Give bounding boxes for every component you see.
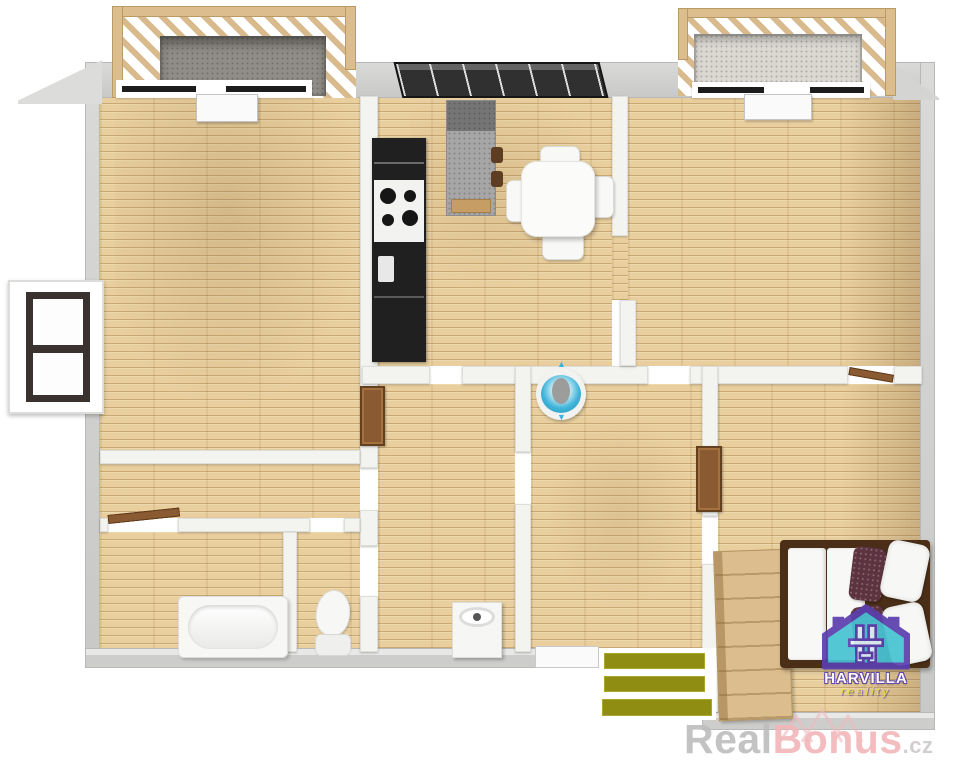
wall-hall-bath <box>178 518 310 532</box>
watermark-bonus: Bonus <box>773 716 903 762</box>
balcony-left-rail-top <box>112 6 356 17</box>
window-glass-bar-icon <box>698 87 764 93</box>
bathtub-basin <box>188 605 278 649</box>
kitchen-passage-floor <box>612 236 628 300</box>
wall-middle-1 <box>362 366 430 384</box>
dining-table <box>521 161 595 237</box>
balcony-left-rail-right <box>345 6 356 70</box>
window-glass-bar-icon <box>122 86 196 92</box>
wall-middle-4 <box>894 366 922 384</box>
agency-name: HARVILLA <box>810 670 922 687</box>
counter-handle <box>374 296 424 298</box>
watermark: RealBonus.cz <box>640 704 975 766</box>
wall-hall-room-segment <box>360 510 378 546</box>
fridge-dispenser <box>378 256 394 282</box>
window-grid-kitchen <box>394 62 609 98</box>
entrance-door <box>535 646 599 668</box>
burner-icon <box>404 190 416 202</box>
balcony-door-right <box>744 94 812 120</box>
washing-machine <box>452 602 502 658</box>
burner-icon <box>402 210 418 226</box>
balcony-right-rail-left <box>678 8 688 60</box>
agency-tagline: reality <box>810 686 922 698</box>
watermark-real: Real <box>684 716 773 762</box>
toilet-bowl <box>314 588 353 637</box>
tall-cabinet <box>696 446 722 512</box>
mat-stripe <box>604 653 705 669</box>
open-door-bedroom <box>848 367 894 383</box>
kitchen-island-dark-top <box>447 101 495 131</box>
bar-stool <box>491 171 503 187</box>
toilet-tank <box>315 634 351 656</box>
arrow-up-icon: ▲ <box>557 359 566 369</box>
window-glass-bar-icon <box>810 87 864 93</box>
kitchen-island-wood-base <box>451 199 491 213</box>
burner-icon <box>382 214 394 226</box>
wall-living-hall <box>100 450 360 464</box>
bar-stool <box>491 147 503 163</box>
pillow-dark <box>848 545 887 603</box>
agency-logo: HARVILLA reality <box>810 604 922 720</box>
arrow-down-icon: ▼ <box>557 412 566 422</box>
bay-window <box>8 280 104 414</box>
stove-top <box>374 180 424 242</box>
toilet <box>314 590 352 658</box>
blue-washbasin: ▲ ▼ <box>536 368 586 420</box>
burner-icon <box>380 188 396 204</box>
wall-hall-wc <box>344 518 360 532</box>
room-top-right-floor <box>628 96 920 366</box>
small-cabinet <box>360 386 385 446</box>
kitchen-counter <box>372 138 426 362</box>
door-jamb-bathroom <box>100 518 108 532</box>
room-bottom-center-floor <box>531 384 702 648</box>
washing-machine-knob <box>473 613 481 621</box>
balcony-door-left <box>196 94 258 122</box>
floor-plan-canvas: ▲ ▼ <box>0 0 980 768</box>
bathtub <box>178 596 288 658</box>
bay-window-frame <box>26 292 90 402</box>
washbasin-center <box>552 378 570 404</box>
wall-bevel-top-left <box>18 60 102 104</box>
balcony-right-rail-right <box>885 8 896 96</box>
house-logo-icon <box>822 604 910 670</box>
bay-window-mullion <box>33 345 83 353</box>
wall-wc-room-segment <box>360 596 378 652</box>
wall-bottom-rooms-upper <box>515 366 531 452</box>
wall-kitchen-rightroom <box>612 96 628 236</box>
hallway-floor <box>100 464 360 518</box>
window-glass-bar-icon <box>226 86 306 92</box>
wall-kitchen-rightroom-nub <box>620 300 636 366</box>
living-room-floor <box>100 96 360 450</box>
watermark-cz: .cz <box>903 733 934 758</box>
counter-handle <box>374 162 424 164</box>
balcony-right-rail-top <box>678 8 896 18</box>
wall-bottom-rooms-lower <box>515 504 531 652</box>
mat-stripe <box>604 676 705 692</box>
kitchen-island <box>446 100 496 216</box>
